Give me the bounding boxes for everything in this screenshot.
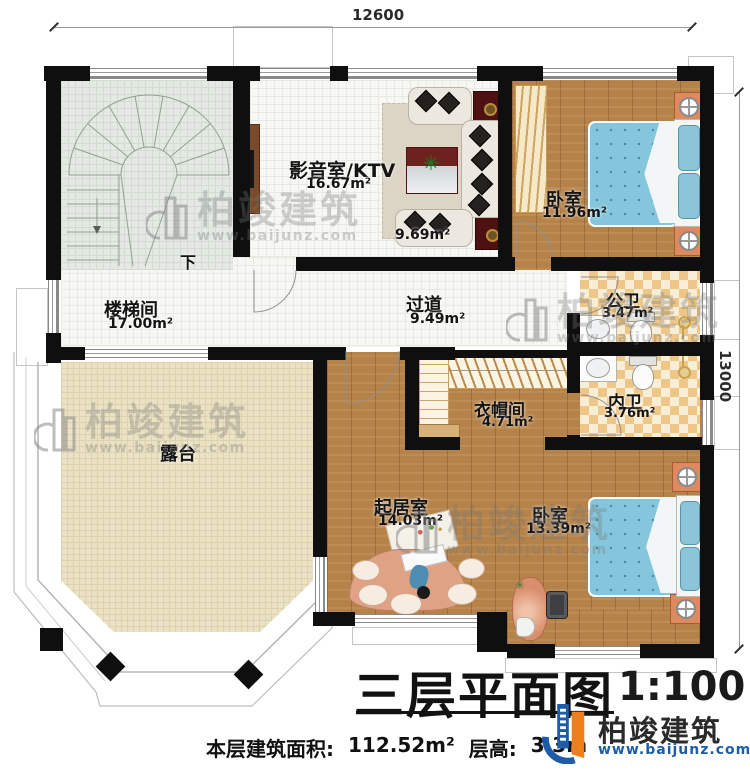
room-area-cloakroom: 4.71m² — [482, 415, 533, 430]
room-area-stairwell: 17.00m² — [108, 316, 173, 332]
brand-logo-icon — [534, 700, 592, 764]
room-area-hallway: 9.49m² — [410, 311, 465, 327]
floor-height-label: 层高: — [469, 733, 517, 762]
brand-url: www.baijunz.com — [598, 742, 750, 758]
floor-area-value: 112.52m² — [348, 733, 455, 762]
dimension-line-top — [53, 27, 693, 28]
room-area-bedroom2: 13.39m² — [526, 521, 591, 537]
floor-area-label: 本层建筑面积: — [206, 733, 334, 762]
stair-direction: 下 — [180, 249, 196, 273]
room-area-private-bath: 3.76m² — [604, 406, 655, 421]
room-label-terrace: 露台 — [160, 440, 196, 466]
room-area-ktv: 16.67m² — [306, 176, 371, 192]
room-area-public-bath: 3.47m² — [602, 306, 653, 321]
dimension-right: 13000 — [716, 350, 734, 402]
dimension-line-right — [739, 92, 740, 650]
plan-footer: 本层建筑面积:112.52m²层高:3.3m — [206, 733, 587, 762]
room-area-living: 14.03m² — [378, 513, 443, 529]
plan-scale: 1:100 — [618, 664, 745, 710]
floorplan-canvas: ✳ ✳ — [0, 0, 750, 772]
dimension-top: 12600 — [352, 6, 404, 24]
room-area-bedroom1: 11.96m² — [542, 205, 607, 221]
